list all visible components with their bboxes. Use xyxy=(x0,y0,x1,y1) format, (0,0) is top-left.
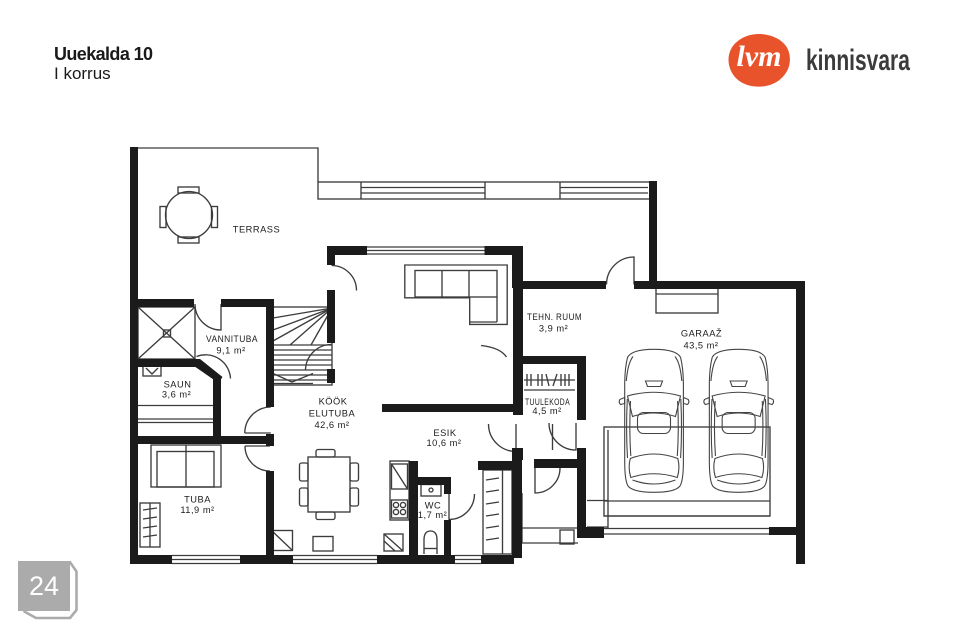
svg-text:3,9 m²: 3,9 m² xyxy=(539,324,568,334)
svg-text:WC: WC xyxy=(425,501,442,511)
svg-text:ESIK: ESIK xyxy=(433,428,456,438)
svg-text:43,5 m²: 43,5 m² xyxy=(683,341,718,351)
svg-text:ELUTUBA: ELUTUBA xyxy=(309,409,356,419)
svg-text:4,5 m²: 4,5 m² xyxy=(532,406,561,416)
svg-text:TEHN. RUUM: TEHN. RUUM xyxy=(527,312,582,322)
svg-text:3,6 m²: 3,6 m² xyxy=(162,390,191,400)
svg-text:9,1 m²: 9,1 m² xyxy=(216,346,245,356)
svg-text:42,6 m²: 42,6 m² xyxy=(314,420,349,430)
svg-text:GARAAŽ: GARAAŽ xyxy=(681,329,722,339)
svg-text:11,9 m²: 11,9 m² xyxy=(180,505,214,515)
svg-text:1,7 m²: 1,7 m² xyxy=(418,510,447,520)
svg-text:TERRASS: TERRASS xyxy=(233,225,280,235)
svg-text:10,6 m²: 10,6 m² xyxy=(426,438,461,448)
svg-text:TUBA: TUBA xyxy=(184,495,211,505)
svg-text:KÖÖK: KÖÖK xyxy=(319,396,348,406)
svg-text:SAUN: SAUN xyxy=(164,380,192,390)
svg-text:VANNITUBA: VANNITUBA xyxy=(206,334,258,344)
